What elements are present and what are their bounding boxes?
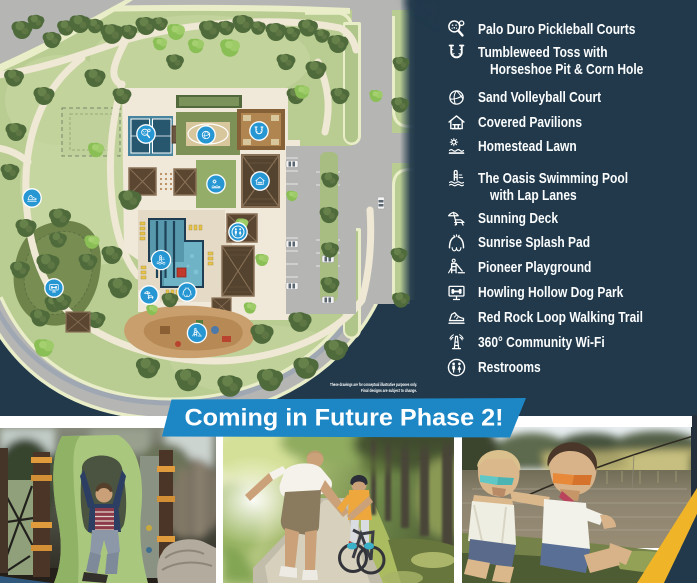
svg-text:Coming in Future Phase 2!: Coming in Future Phase 2!: [185, 405, 504, 432]
